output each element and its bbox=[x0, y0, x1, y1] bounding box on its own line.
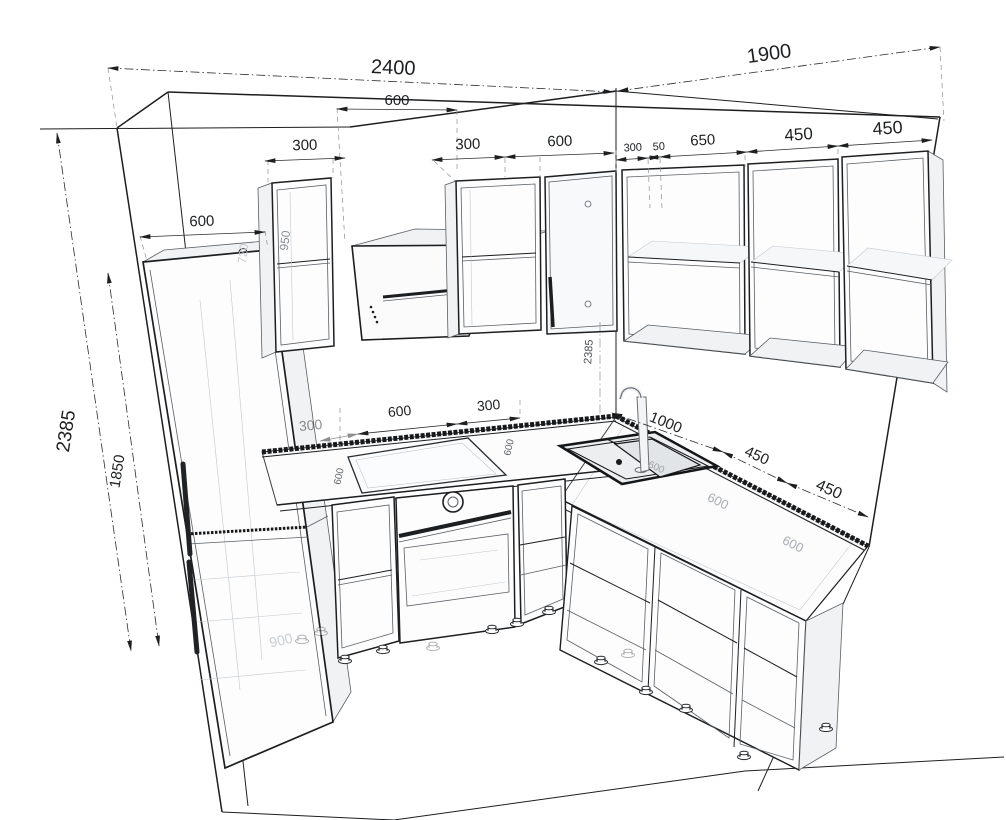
dim-base-right-cab2: 450 bbox=[813, 477, 844, 503]
dim-wall-right-total: 1900 bbox=[746, 40, 793, 68]
dim-line-hood-span bbox=[337, 109, 457, 110]
dim-base-hob-width: 600 bbox=[387, 402, 412, 420]
dim-corner-wall-height: 2385 bbox=[582, 339, 596, 364]
dim-upper-right-cab2: 450 bbox=[784, 124, 814, 145]
dim-wall-cab-height: 950 bbox=[277, 229, 293, 251]
dim-line-wall-left-total bbox=[108, 68, 614, 92]
dim-upper-right-offset: 300 bbox=[623, 142, 642, 155]
dim-upper-right-cab3: 450 bbox=[872, 117, 903, 139]
dim-room-height: 2385 bbox=[53, 409, 80, 454]
dim-fridge-top-clearance: 720 bbox=[235, 242, 251, 264]
wall-cabinet-right-650 bbox=[622, 165, 766, 354]
kitchen-3d-wireframe: 2400 1900 600 300 300 600 300 50 650 450… bbox=[0, 0, 1006, 820]
dim-fridge-width: 600 bbox=[189, 213, 215, 231]
wall-cabinet-right-450b bbox=[842, 151, 952, 392]
dim-upper-right-gap: 50 bbox=[652, 141, 665, 154]
dim-upper-left-cab3: 600 bbox=[547, 133, 573, 151]
dim-fridge-height: 1850 bbox=[107, 453, 129, 489]
dim-base-right-cab1: 450 bbox=[742, 443, 772, 469]
kitchen-cad-drawing: 2400 1900 600 300 300 600 300 50 650 450… bbox=[0, 0, 1006, 820]
dim-upper-left-cab2: 300 bbox=[455, 136, 481, 154]
dim-upper-right-cab1: 650 bbox=[690, 131, 716, 149]
dim-hood-span: 600 bbox=[384, 92, 409, 109]
dim-base-right-of-hob: 300 bbox=[476, 396, 501, 414]
wall-cabinet-left-300 bbox=[258, 178, 334, 358]
end-side-panel bbox=[799, 603, 843, 770]
wall-cabinet-mid-300 bbox=[445, 177, 541, 338]
sink-drain bbox=[616, 459, 622, 465]
floor-edge bbox=[222, 771, 745, 820]
dim-base-left-filler: 300 bbox=[298, 416, 323, 434]
dim-line-room-height bbox=[57, 133, 131, 651]
dim-wall-left-total: 2400 bbox=[371, 56, 416, 80]
oven-knob bbox=[443, 492, 463, 512]
oven-cabinet bbox=[396, 486, 515, 643]
wall-cabinet-door-600 bbox=[545, 171, 617, 334]
base-cabinet-right-of-oven bbox=[518, 479, 567, 624]
dim-upper-left-cab1: 300 bbox=[292, 137, 318, 155]
base-cabinet-left-300 bbox=[332, 497, 399, 658]
